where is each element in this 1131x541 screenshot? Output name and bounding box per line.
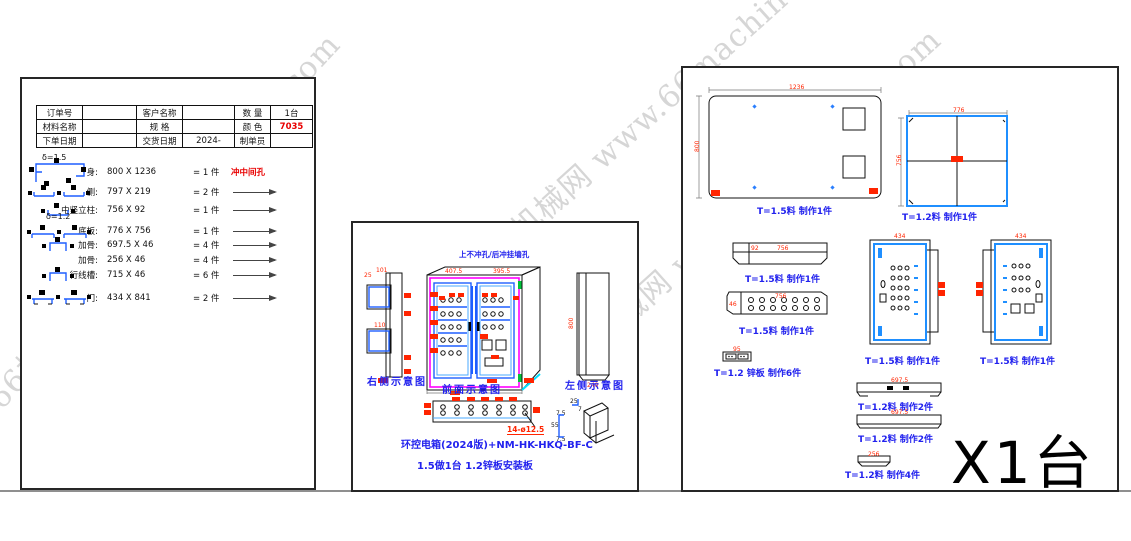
part-label: T=1.2 锌板 制作6件 <box>714 366 801 379</box>
part-qty: = 6 件 <box>193 269 231 281</box>
part-label: T=1.5料 制作1件 <box>980 354 1055 367</box>
part-label: T=1.2料 制作2件 <box>858 432 933 445</box>
spec-caption: 1.5做1台 1.2锌板安装板 <box>417 457 533 472</box>
svg-text:756: 756 <box>896 154 903 166</box>
part-dims: 800 X 1236 <box>98 167 193 177</box>
punch-note: 上不冲孔/后冲挂墙孔 <box>459 249 529 260</box>
part-label: T=1.2料 制作1件 <box>902 210 977 223</box>
svg-text:7: 7 <box>578 406 582 413</box>
leader-arrow-icon <box>233 192 275 193</box>
color-label: 颜 色 <box>235 120 271 134</box>
profile-sketch-icon <box>26 287 92 309</box>
part-red-note: 冲中间孔 <box>231 166 265 178</box>
part-qty: = 1 件 <box>193 166 231 178</box>
svg-text:256: 256 <box>868 451 880 458</box>
part-dims: 756 X 92 <box>98 205 193 215</box>
left-side-view-drawing: 800 240 <box>565 265 621 389</box>
svg-text:95: 95 <box>733 346 741 353</box>
small-rib-drawing: 256 <box>855 452 893 468</box>
svg-text:776: 776 <box>953 107 965 114</box>
part-qty: = 4 件 <box>193 254 231 266</box>
bottom-plate-drawing: 776 756 <box>895 106 1017 210</box>
left-side-view-label: 左侧示意图 <box>565 377 625 392</box>
qty-value: 1台 <box>271 106 313 120</box>
front-view-label: 前面示意图 <box>442 381 502 396</box>
material-label: 材料名称 <box>37 120 83 134</box>
part-dims: 697.5 X 46 <box>98 240 193 250</box>
model-caption: 环控电箱(2024版)+NM-HK-HKQ-BF-C <box>401 436 593 451</box>
part-label: T=1.5料 制作1件 <box>865 354 940 367</box>
delivery-date-label: 交货日期 <box>137 134 183 148</box>
part-label: T=1.2料 制作4件 <box>845 468 920 481</box>
assembly-view-panel: 上不冲孔/后冲挂墙孔 25 101 110 右侧示意图 <box>351 221 639 492</box>
part-qty: = 2 件 <box>193 292 231 304</box>
part-qty: = 1 件 <box>193 204 231 216</box>
flat-parts-panel: 1236 800 T=1.5料 制作1件 776 756 T=1 <box>681 66 1119 492</box>
svg-text:800: 800 <box>568 317 575 329</box>
cad-drawing-sheet: 66机械网 www.66machine.com 66机械网 www.66mach… <box>0 0 1131 541</box>
leader-arrow-icon <box>233 275 275 276</box>
customer-label: 客户名称 <box>137 106 183 120</box>
svg-text:697.5: 697.5 <box>891 377 908 384</box>
svg-text:110: 110 <box>374 322 386 329</box>
part-label: T=1.5料 制作1件 <box>757 204 832 217</box>
part-qty: = 2 件 <box>193 186 231 198</box>
cut-item-door: 门: 434 X 841 = 2 件 <box>26 285 280 311</box>
qty-label: 数 量 <box>235 106 271 120</box>
color-value: 7035 <box>271 120 313 134</box>
svg-text:395.5: 395.5 <box>493 268 510 275</box>
leader-arrow-icon <box>233 298 275 299</box>
spec-value <box>183 120 235 134</box>
svg-text:25: 25 <box>364 272 372 279</box>
svg-text:756: 756 <box>775 293 787 300</box>
rib-bar-a-drawing: 697.5 <box>853 376 945 398</box>
cut-item-wire-duct: 行线槽: 715 X 46 = 6 件 <box>26 266 280 284</box>
door-a-drawing: 434 <box>866 232 946 350</box>
spec-label: 规 格 <box>137 120 183 134</box>
svg-text:434: 434 <box>1015 233 1027 240</box>
right-side-view-drawing: 25 101 110 <box>360 265 414 387</box>
order-date-value <box>83 134 137 148</box>
leader-arrow-icon <box>233 210 275 211</box>
svg-text:25: 25 <box>570 398 578 405</box>
right-side-view-label: 右侧示意图 <box>367 373 427 388</box>
part-dims: 797 X 219 <box>98 187 193 197</box>
part-qty: = 4 件 <box>193 239 231 251</box>
svg-text:1236: 1236 <box>789 84 804 91</box>
front-view-drawing: 407.5 395.5 <box>425 262 549 396</box>
build-quantity-text: X1台 <box>951 416 1095 500</box>
part-label: T=1.5料 制作1件 <box>739 324 814 337</box>
order-no-label: 订单号 <box>37 106 83 120</box>
body-flat-drawing: 1236 800 <box>693 84 898 202</box>
maker-value <box>271 134 313 148</box>
center-post-drawing: 756 92 <box>725 238 835 268</box>
leader-arrow-icon <box>233 245 275 246</box>
svg-text:101: 101 <box>376 267 388 274</box>
part-dims: 256 X 46 <box>98 255 193 265</box>
svg-text:434: 434 <box>894 233 906 240</box>
material-value <box>83 120 137 134</box>
part-label: T=1.5料 制作1件 <box>745 272 820 285</box>
delivery-date-value: 2024- <box>183 134 235 148</box>
svg-text:697.5: 697.5 <box>891 409 908 416</box>
part-dims: 715 X 46 <box>98 270 193 280</box>
svg-text:55: 55 <box>551 422 559 429</box>
customer-value <box>183 106 235 120</box>
svg-text:407.5: 407.5 <box>445 268 462 275</box>
part-dims: 776 X 756 <box>98 226 193 236</box>
leader-arrow-icon <box>233 231 275 232</box>
svg-text:92: 92 <box>751 245 759 252</box>
svg-text:46: 46 <box>729 301 737 308</box>
duct-bar-drawing: 756 46 <box>721 286 833 322</box>
hole-callout: 14-ø12.5 <box>507 425 544 435</box>
maker-label: 制单员 <box>235 134 271 148</box>
order-no-value <box>83 106 137 120</box>
svg-text:756: 756 <box>777 245 789 252</box>
part-dims: 434 X 841 <box>98 293 193 303</box>
cutting-list-panel: 订单号 客户名称 数 量 1台 材料名称 规 格 颜 色 7035 下单日期 交… <box>20 77 316 490</box>
svg-text:7.5: 7.5 <box>556 410 566 417</box>
order-info-table: 订单号 客户名称 数 量 1台 材料名称 规 格 颜 色 7035 下单日期 交… <box>36 105 313 148</box>
door-b-drawing: 434 <box>975 232 1055 350</box>
order-date-label: 下单日期 <box>37 134 83 148</box>
rib-bar-b-drawing: 697.5 <box>853 408 945 430</box>
zinc-part-drawing: 95 <box>721 346 755 362</box>
svg-text:800: 800 <box>694 140 701 152</box>
leader-arrow-icon <box>233 260 275 261</box>
profile-sketch-icon <box>26 266 92 284</box>
